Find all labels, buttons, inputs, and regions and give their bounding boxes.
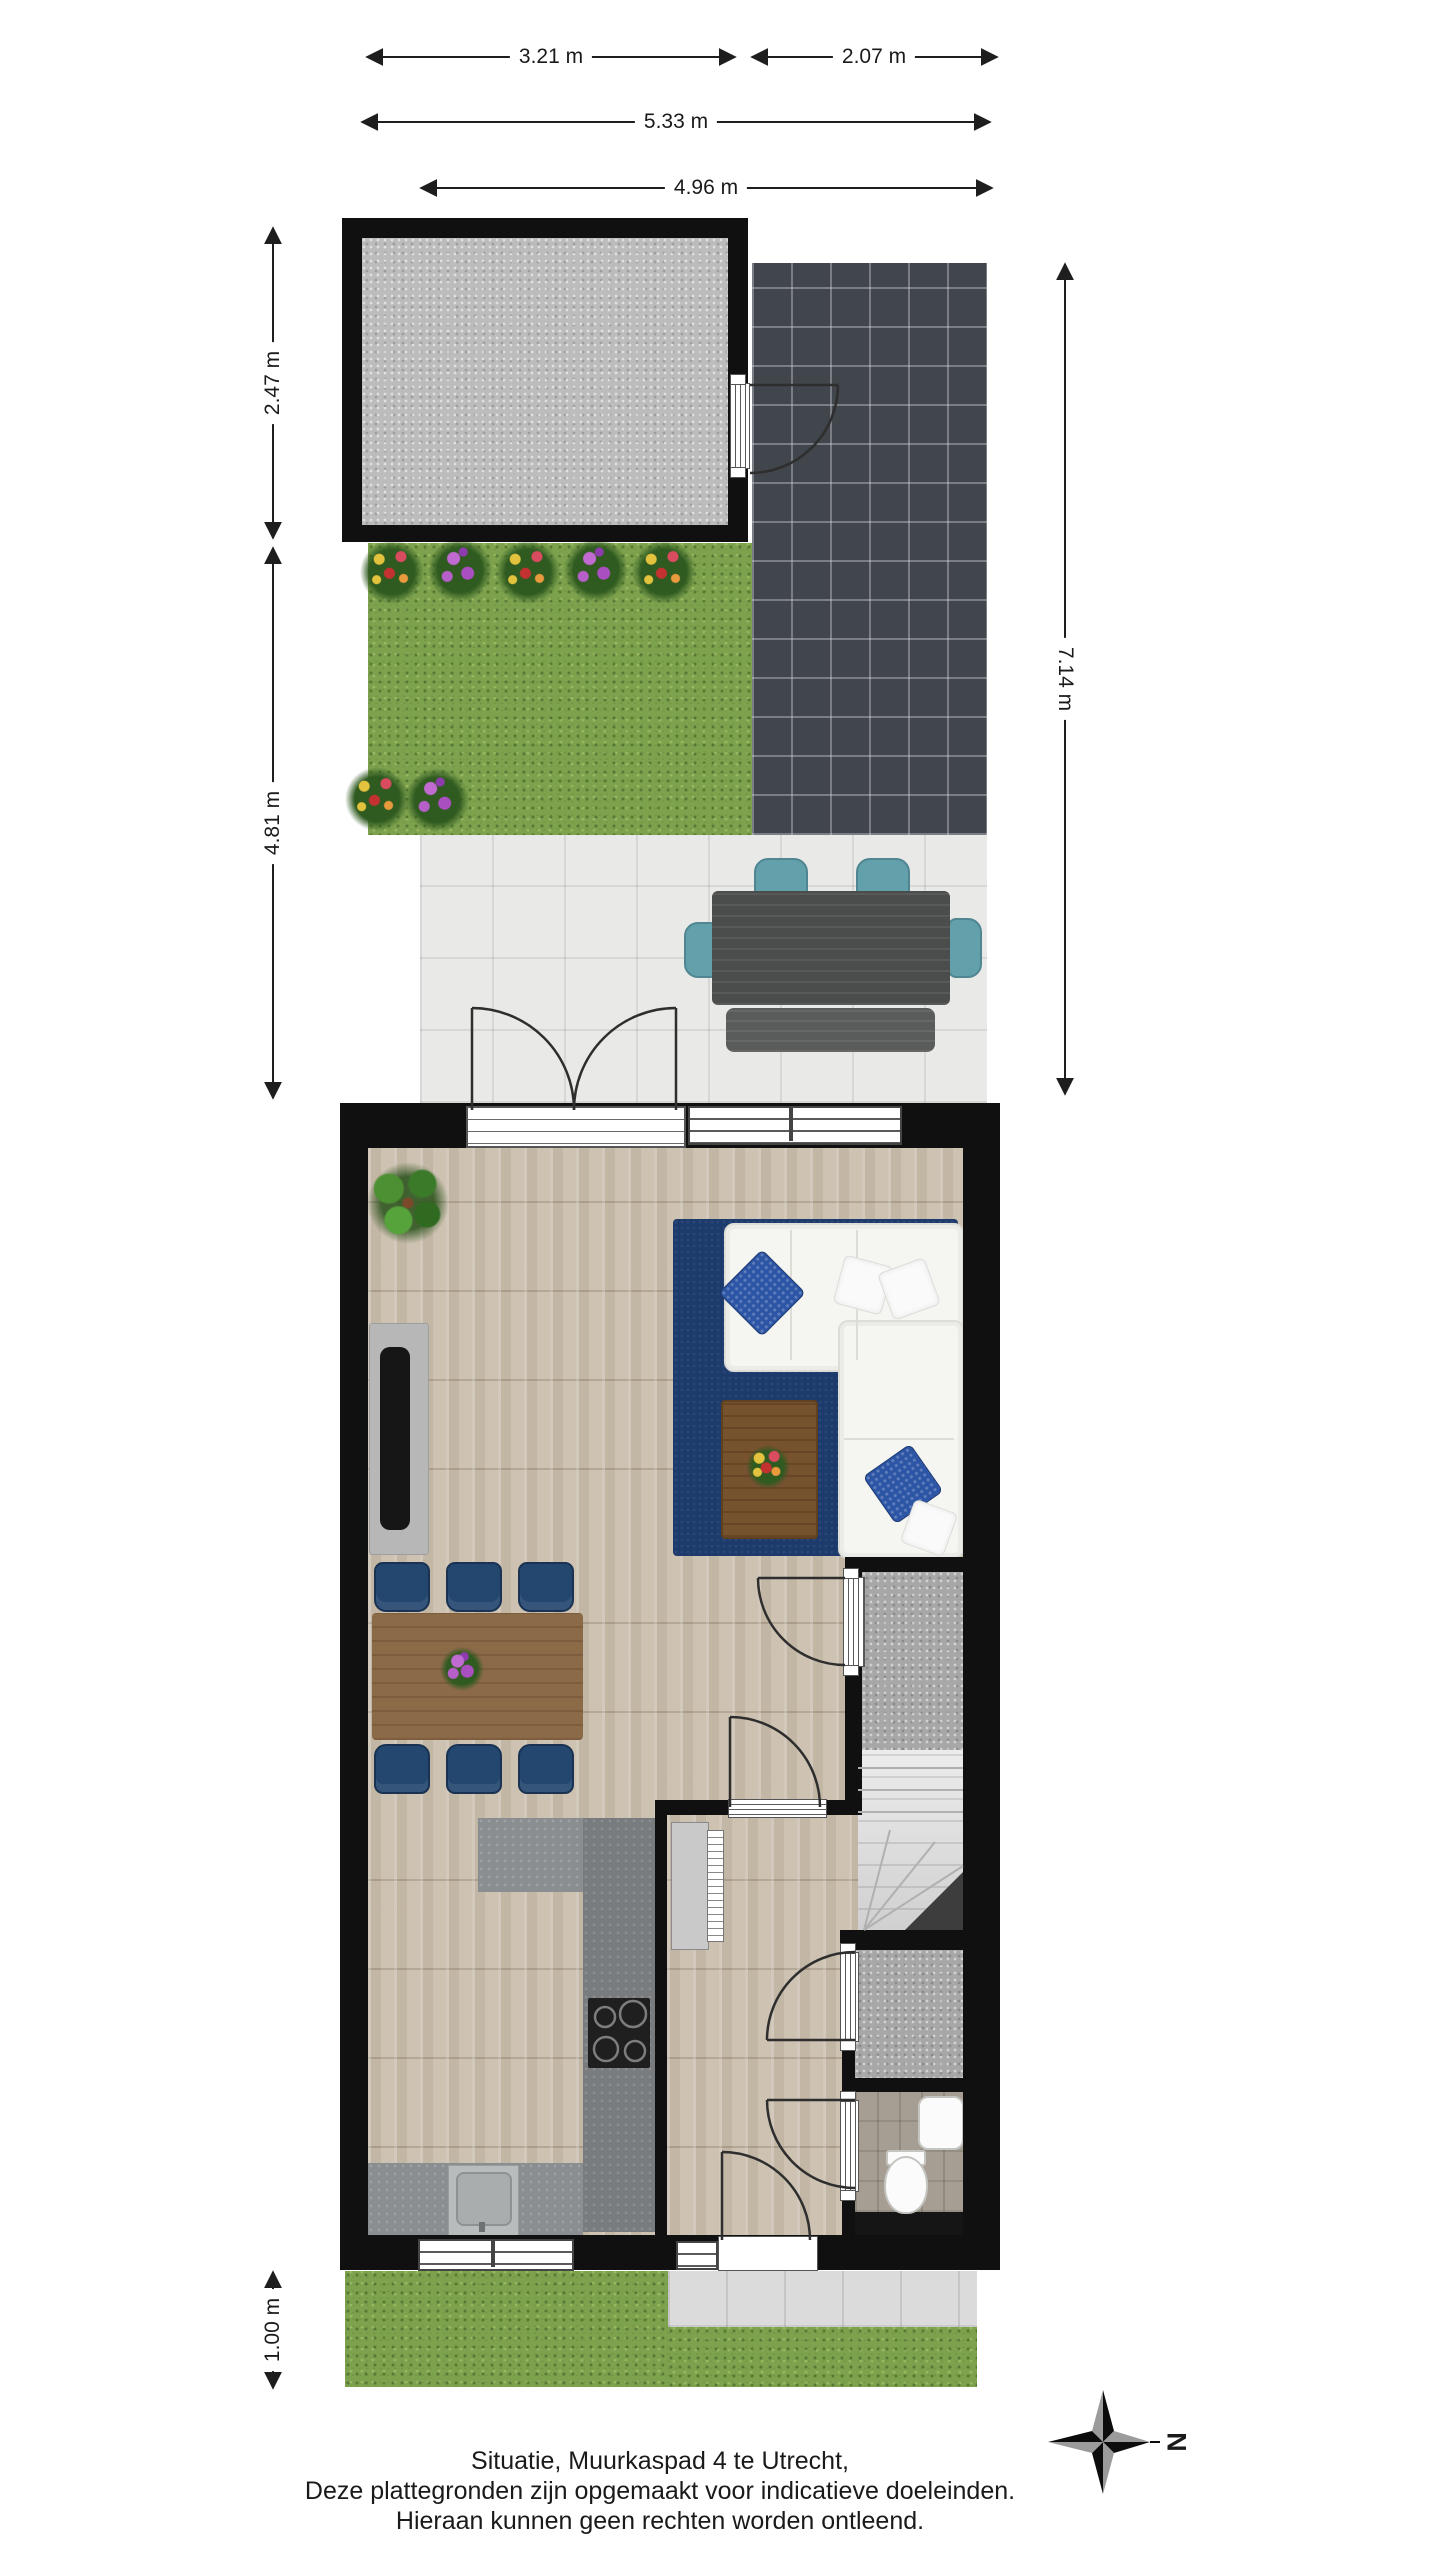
table-plant — [746, 1445, 790, 1489]
dark-tile-patio — [752, 263, 987, 835]
dimension-label: 7.14 m — [1053, 638, 1077, 720]
front-pavement — [668, 2271, 977, 2327]
dining-chair — [518, 1562, 574, 1612]
interior-wall — [842, 2078, 963, 2092]
washbasin — [918, 2096, 964, 2150]
dining-chair — [446, 1562, 502, 1612]
staircase — [858, 1750, 963, 1930]
dimension-label: 2.47 m — [261, 342, 285, 424]
tv — [380, 1347, 410, 1530]
bathroom-door-frame — [840, 2100, 859, 2192]
footer-note: Situatie, Muurkaspad 4 te Utrecht, Deze … — [200, 2446, 1120, 2536]
outdoor-chair — [948, 918, 982, 978]
dimension-label: 5.33 m — [635, 110, 717, 134]
table-plant — [440, 1647, 484, 1691]
flower-bed — [632, 540, 696, 604]
sink-basin — [456, 2172, 512, 2226]
site-floorplan: 3.21 m 2.07 m 5.33 m 4.96 m 2.47 m 4.81 … — [0, 0, 1440, 2560]
garage-floor — [362, 238, 728, 525]
window-mullion — [789, 1108, 793, 1141]
dimension-label: 4.96 m — [665, 176, 747, 200]
dimension-label: 2.07 m — [833, 45, 915, 69]
dining-chair — [374, 1562, 430, 1612]
front-door-threshold — [718, 2236, 818, 2271]
compass-north-label: N — [1161, 2432, 1192, 2452]
sink-faucet — [479, 2222, 485, 2232]
flower-bed — [564, 538, 628, 602]
interior-wall — [845, 1557, 963, 1572]
outdoor-dining-table — [712, 891, 950, 1005]
sofa-cushion-divider — [844, 1438, 954, 1440]
house-wall-east — [963, 1103, 1000, 2270]
dining-chair — [446, 1744, 502, 1794]
hall-cabinet — [671, 1822, 709, 1950]
potted-plant — [360, 1155, 456, 1251]
toilet-bowl — [884, 2156, 928, 2214]
dimension-label: 1.00 m — [261, 2289, 285, 2371]
flower-bed — [345, 767, 409, 831]
closet-floor — [855, 1950, 963, 2078]
flower-bed — [496, 540, 560, 604]
closet-door-frame — [843, 1577, 865, 1667]
french-door-threshold — [466, 1106, 686, 1148]
dining-chair — [518, 1744, 574, 1794]
cooktop — [588, 1998, 650, 2068]
dining-chair — [374, 1744, 430, 1794]
window-mullion — [491, 2241, 495, 2267]
kitchen-worktop — [478, 1818, 592, 1892]
flower-bed — [360, 540, 424, 604]
footer-line-address: Situatie, Muurkaspad 4 te Utrecht, — [200, 2446, 1120, 2476]
front-door-sidelight — [676, 2241, 718, 2270]
interior-wall — [840, 1930, 963, 1950]
front-grass-strip — [668, 2327, 977, 2387]
closet-floor — [862, 1572, 963, 1750]
flower-bed — [405, 768, 469, 832]
hall-door-frame — [728, 1799, 827, 1818]
outdoor-bench — [726, 1008, 935, 1052]
bathroom-lower-wall — [855, 2212, 963, 2235]
house-wall-west — [340, 1103, 368, 2270]
garage-door-frame — [730, 383, 750, 469]
footer-line-rights: Hieraan kunnen geen rechten worden ontle… — [200, 2506, 1120, 2536]
kitchen-window — [418, 2239, 574, 2271]
flower-bed — [428, 538, 492, 602]
radiator — [707, 1830, 724, 1942]
storage-door-frame — [840, 1952, 859, 2042]
footer-line-disclaimer: Deze plattegronden zijn opgemaakt voor i… — [200, 2476, 1120, 2506]
front-grass-strip — [345, 2271, 668, 2387]
living-room-window — [688, 1106, 902, 1145]
interior-wall — [655, 1800, 667, 2235]
dimension-label: 4.81 m — [261, 782, 285, 864]
dimension-label: 3.21 m — [510, 45, 592, 69]
